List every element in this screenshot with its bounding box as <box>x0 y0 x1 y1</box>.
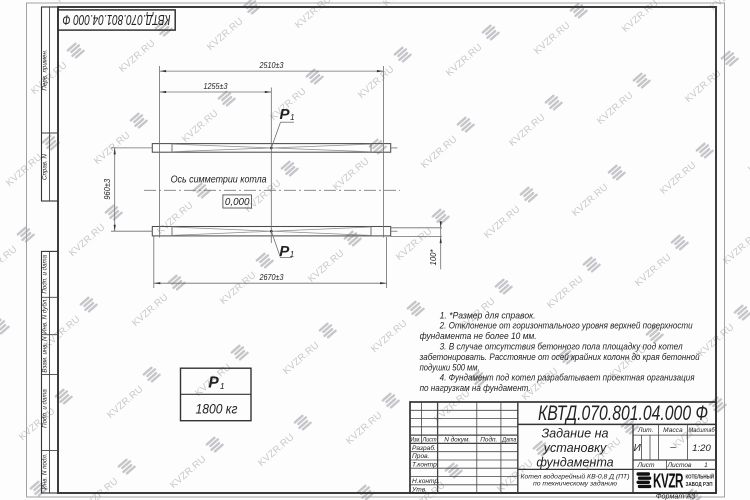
svg-text:установку: установку <box>543 441 607 455</box>
svg-text:Изм.: Изм. <box>411 437 421 444</box>
svg-text:KVZR.RU: KVZR.RU <box>633 252 673 289</box>
svg-text:100*: 100* <box>429 249 438 266</box>
svg-text:–: – <box>669 442 676 453</box>
svg-text:KVZR.RU: KVZR.RU <box>54 0 94 5</box>
svg-text:1: 1 <box>290 113 294 122</box>
svg-text:KVZR.RU: KVZR.RU <box>570 182 610 219</box>
svg-text:Лит.: Лит. <box>637 427 654 434</box>
svg-text:Н.контр.: Н.контр. <box>412 478 440 485</box>
svg-text:Подп.: Подп. <box>480 436 497 444</box>
svg-text:Перв. примен.: Перв. примен. <box>41 49 48 90</box>
svg-text:KVZR.RU: KVZR.RU <box>369 318 409 355</box>
svg-text:Котел водогрейный КВ-0,8 Д (ПТ: Котел водогрейный КВ-0,8 Д (ПТ) <box>521 472 630 480</box>
svg-text:2510±3: 2510±3 <box>259 61 284 70</box>
svg-text:Масса: Масса <box>663 427 683 434</box>
svg-text:KVZR.RU: KVZR.RU <box>281 340 321 377</box>
svg-text:1. *Размер для справок.: 1. *Размер для справок. <box>440 310 536 321</box>
svg-text:KVZR.RU: KVZR.RU <box>4 152 44 189</box>
svg-text:Инв. N дубл.: Инв. N дубл. <box>41 298 48 334</box>
svg-text:KVZR.RU: KVZR.RU <box>344 410 384 447</box>
svg-text:2. Отклонение от горизонтально: 2. Отклонение от горизонтального уровня … <box>439 321 693 332</box>
svg-text:И: И <box>634 443 642 454</box>
svg-text:KVZR.RU: KVZR.RU <box>205 16 245 53</box>
svg-text:1255±3: 1255±3 <box>204 82 228 91</box>
svg-text:Утв.: Утв. <box>411 486 427 493</box>
svg-text:КВТД.070.801.04.000 Ф: КВТД.070.801.04.000 Ф <box>63 11 171 27</box>
svg-text:KVZR.RU: KVZR.RU <box>419 134 459 171</box>
svg-text:KVZR.RU: KVZR.RU <box>331 156 371 193</box>
svg-text:KVZR.RU: KVZR.RU <box>92 130 132 167</box>
svg-text:KVZR.RU: KVZR.RU <box>595 90 635 127</box>
svg-text:KVZR.RU: KVZR.RU <box>117 38 157 75</box>
svg-text:1800 кг: 1800 кг <box>196 402 238 417</box>
svg-text:KVZR.RU: KVZR.RU <box>444 42 484 79</box>
svg-text:KVZR.RU: KVZR.RU <box>545 274 585 311</box>
svg-text:960±3: 960±3 <box>103 178 112 199</box>
svg-text:KVZR.RU: KVZR.RU <box>130 292 170 329</box>
svg-text:2670±3: 2670±3 <box>259 273 284 282</box>
svg-text:3. В случае отсутствия бетонно: 3. В случае отсутствия бетонного пола пл… <box>440 342 683 353</box>
svg-text:KVZR.RU: KVZR.RU <box>620 0 660 35</box>
svg-text:KVZR.RU: KVZR.RU <box>105 384 145 421</box>
svg-text:забетонировать. Расстояние от: забетонировать. Расстояние от осей крайн… <box>419 352 700 363</box>
svg-text:Формат А3: Формат А3 <box>656 492 695 500</box>
svg-text:P: P <box>279 106 290 123</box>
svg-text:Инв. N подл.: Инв. N подл. <box>41 453 48 489</box>
svg-text:1: 1 <box>704 462 708 469</box>
svg-text:1:20: 1:20 <box>692 443 711 454</box>
svg-text:P: P <box>208 375 219 392</box>
svg-text:N докум.: N докум. <box>444 436 470 444</box>
svg-text:KVZR: KVZR <box>653 470 684 493</box>
svg-text:Ось симметрии котла: Ось симметрии котла <box>171 174 267 185</box>
svg-text:KVZR.RU: KVZR.RU <box>721 230 750 267</box>
svg-text:Т.контр.: Т.контр. <box>412 461 439 468</box>
svg-text:фундамента: фундамента <box>536 455 613 469</box>
svg-text:Масштаб: Масштаб <box>689 426 715 434</box>
svg-text:Взам. инв. N: Взам. инв. N <box>41 336 48 373</box>
svg-text:Листов: Листов <box>666 462 692 469</box>
svg-text:KVZR.RU: KVZR.RU <box>256 432 296 469</box>
svg-text:Разраб.: Разраб. <box>412 444 436 452</box>
svg-text:Лист: Лист <box>422 437 437 444</box>
svg-text:KVZR.RU: KVZR.RU <box>683 68 723 105</box>
svg-text:Подп. и дата: Подп. и дата <box>41 389 48 428</box>
svg-text:KVZR.RU: KVZR.RU <box>0 0 7 27</box>
svg-text:KVZR.RU: KVZR.RU <box>532 20 572 57</box>
svg-text:KVZR.RU: KVZR.RU <box>746 138 750 175</box>
svg-text:KVZR.RU: KVZR.RU <box>293 0 333 31</box>
svg-text:Пров.: Пров. <box>412 453 430 460</box>
svg-text:KVZR.RU: KVZR.RU <box>67 222 107 259</box>
svg-text:Справ. N: Справ. N <box>41 154 48 180</box>
svg-text:4. Фундамент под котел разраба: 4. Фундамент под котел разрабатывает про… <box>440 373 695 384</box>
svg-text:КВТД.070.801.04.000 Ф: КВТД.070.801.04.000 Ф <box>538 402 708 425</box>
svg-text:Лист: Лист <box>637 462 655 469</box>
svg-text:Подп. и дата: Подп. и дата <box>41 254 48 293</box>
svg-text:1: 1 <box>220 381 225 391</box>
svg-text:KVZR.RU: KVZR.RU <box>218 270 258 307</box>
svg-text:KVZR.RU: KVZR.RU <box>180 108 220 145</box>
svg-text:1: 1 <box>290 250 294 259</box>
svg-text:KVZR.RU: KVZR.RU <box>0 244 20 281</box>
svg-text:KVZR.RU: KVZR.RU <box>80 476 120 500</box>
svg-text:KVZR.RU: KVZR.RU <box>507 112 547 149</box>
svg-text:KVZR.RU: KVZR.RU <box>155 200 195 237</box>
svg-text:0,000: 0,000 <box>225 197 250 208</box>
svg-text:Дата: Дата <box>501 437 516 444</box>
svg-text:фундамента не более 10 мм.: фундамента не более 10 мм. <box>420 331 537 342</box>
svg-text:KVZR.RU: KVZR.RU <box>482 204 522 241</box>
svg-text:Задание на: Задание на <box>541 426 608 440</box>
svg-text:KVZR.RU: KVZR.RU <box>306 248 346 285</box>
svg-text:ЗАВОД РЭП: ЗАВОД РЭП <box>686 482 713 488</box>
svg-text:P: P <box>279 243 290 260</box>
svg-text:по нагрузкам на фундамент.: по нагрузкам на фундамент. <box>420 383 531 394</box>
svg-text:KVZR.RU: KVZR.RU <box>734 484 750 500</box>
svg-text:KVZR.RU: KVZR.RU <box>17 406 57 443</box>
svg-text:KVZR.RU: KVZR.RU <box>658 160 698 197</box>
svg-text:KVZR.RU: KVZR.RU <box>168 454 208 491</box>
svg-text:по техническому заданию: по техническому заданию <box>533 480 617 488</box>
svg-text:KVZR.RU: KVZR.RU <box>356 64 396 101</box>
svg-text:КОТЕЛЬНЫЙ: КОТЕЛЬНЫЙ <box>686 473 715 481</box>
svg-text:подушки 500 мм.: подушки 500 мм. <box>420 362 480 373</box>
